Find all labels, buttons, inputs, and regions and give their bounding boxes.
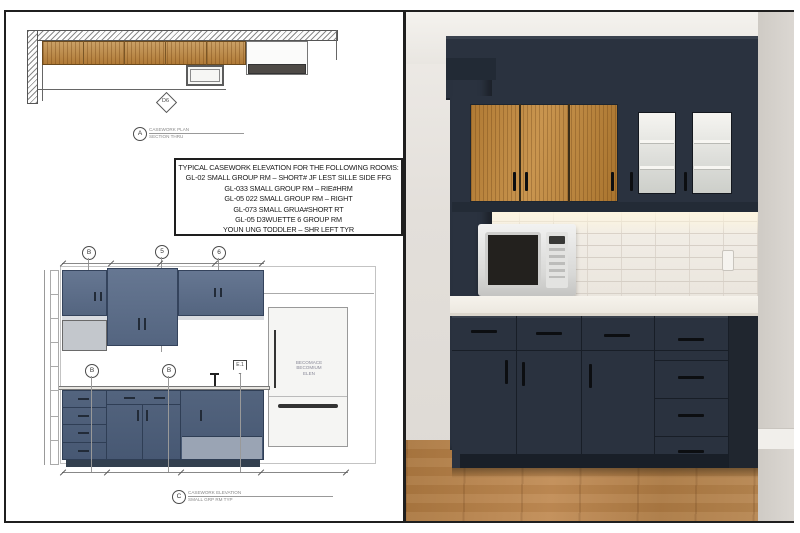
stack-drawer-handle xyxy=(678,450,704,453)
wood-upper-doors xyxy=(470,104,618,202)
base-drawer-handle xyxy=(604,334,630,337)
el-upper-handle xyxy=(144,318,146,330)
plan-section-bubble: A xyxy=(133,127,147,141)
plan-caption-line2: SECTION THRU xyxy=(149,134,183,140)
el-door-handle xyxy=(137,410,139,421)
plan-cab-divider xyxy=(165,41,166,65)
callout-bubble: B xyxy=(85,364,99,378)
note-title: TYPICAL CASEWORK ELEVATION FOR THE FOLLO… xyxy=(176,163,401,173)
el-base-divider xyxy=(106,390,107,460)
stack-drawer-handle xyxy=(678,376,704,379)
el-drawer-handle xyxy=(78,450,89,452)
el-door-handle xyxy=(200,410,202,421)
story-pole-line xyxy=(50,342,59,343)
el-undercab-light-band xyxy=(178,316,264,320)
el-door-stile xyxy=(142,404,143,460)
el-drawer-handle xyxy=(78,415,89,417)
dim-line-top xyxy=(62,263,264,264)
microwave-buttons xyxy=(549,248,565,278)
toe-kick xyxy=(460,454,728,468)
plan-detail-tag: D6 xyxy=(159,98,172,104)
plan-cab-divider xyxy=(83,41,84,65)
glass-shelf-line xyxy=(694,166,730,169)
el-toe-kick xyxy=(66,460,260,467)
base-divider xyxy=(654,316,655,468)
base-cabinet-run xyxy=(452,316,760,468)
el-upper-handle xyxy=(138,318,140,330)
el-drawer-line xyxy=(62,442,106,443)
base-door-handle xyxy=(505,360,508,384)
base-divider xyxy=(516,316,517,468)
plan-wall-corner xyxy=(27,30,38,104)
stack-drawer-handle xyxy=(678,338,704,341)
story-pole-line xyxy=(50,416,59,417)
el-sink-apron xyxy=(182,436,262,459)
el-fridge-freezer-line xyxy=(269,396,347,397)
base-drawer-handle xyxy=(536,332,562,335)
grid-bubble: 6 xyxy=(212,246,226,260)
tall-cabinet-crown xyxy=(446,58,496,80)
callout-leader xyxy=(91,376,92,472)
glass-shelf-line xyxy=(694,140,730,143)
note-line: GL-033 SMALL GROUP RM – RIE#HRM xyxy=(176,184,401,194)
glass-door-left-pane xyxy=(638,112,676,194)
elevation-caption-line2: SMALL GRP RM TYP xyxy=(188,497,233,503)
wood-door-gap xyxy=(519,104,521,202)
story-pole-line xyxy=(50,366,59,367)
elevation-caption-line1: CASEWORK ELEVATION xyxy=(188,490,241,496)
el-upper-cab-middle xyxy=(107,268,178,346)
el-upper-handle xyxy=(214,288,216,297)
callout-bubble: B xyxy=(162,364,176,378)
el-drawer-handle xyxy=(124,397,135,399)
plan-upper-cabinets xyxy=(42,41,246,65)
countertop xyxy=(450,296,760,316)
plan-wall-end xyxy=(336,30,337,60)
story-pole xyxy=(50,270,59,465)
dim-tick xyxy=(343,469,349,475)
el-faucet-spout xyxy=(210,373,219,375)
el-open-shelf-box xyxy=(62,320,107,351)
stack-drawer-handle xyxy=(678,414,704,417)
story-pole-line xyxy=(50,294,59,295)
base-divider xyxy=(581,316,582,468)
el-drawer-line xyxy=(62,424,106,425)
keynote-tag: E.1 xyxy=(233,362,247,368)
note-line: GL-05 D3WUETTE 6 GROUP RM xyxy=(176,215,401,225)
grid-bubble: B xyxy=(82,246,96,260)
el-drawer-handle xyxy=(78,432,89,434)
el-fridge-label-line: ELEN xyxy=(284,371,334,376)
glass-shelf-line xyxy=(640,140,674,143)
grid-bubble: 5 xyxy=(155,245,169,259)
el-door-handle xyxy=(146,410,148,421)
dim-line-left xyxy=(44,270,45,465)
cabinet-floor-shadow xyxy=(452,468,760,478)
base-side-panel xyxy=(729,316,760,468)
story-pole-line xyxy=(50,390,59,391)
stack-drawer-line xyxy=(655,398,728,399)
stack-drawer-line xyxy=(655,360,728,361)
plan-counter-edge xyxy=(38,89,226,90)
plan-sink-inner xyxy=(190,69,220,82)
screenshot-root: D6 A CASEWORK PLAN SECTION THRU TYPICAL … xyxy=(0,0,800,533)
dim-line-fridge xyxy=(264,293,374,294)
plan-cab-divider xyxy=(124,41,125,65)
el-fridge-label: BECOMACE BECOMIUM ELEN xyxy=(284,360,334,376)
casework-note-box: TYPICAL CASEWORK ELEVATION FOR THE FOLLO… xyxy=(174,158,403,236)
el-drawer-handle xyxy=(154,397,165,399)
plan-wall-band xyxy=(30,30,338,41)
el-drawer-handle xyxy=(78,398,89,400)
el-base-divider xyxy=(180,390,181,460)
story-pole-line xyxy=(50,440,59,441)
plan-caption-line1: CASEWORK PLAN xyxy=(149,127,189,133)
el-drawer-line xyxy=(62,407,106,408)
note-line: GL-05 022 SMALL GROUP RM – RIGHT xyxy=(176,194,401,204)
el-upper-handle xyxy=(220,288,222,297)
upper-door-handle xyxy=(525,172,528,191)
upper-door-handle xyxy=(513,172,516,191)
wall-outlet xyxy=(722,250,734,271)
microwave-door-window xyxy=(485,232,541,288)
microwave-display xyxy=(549,236,565,244)
base-drawer-handle xyxy=(471,330,497,333)
callout-leader xyxy=(240,374,241,472)
el-faucet xyxy=(214,374,216,386)
stack-drawer-line xyxy=(655,436,728,437)
story-pole-line xyxy=(50,318,59,319)
base-door-handle xyxy=(522,362,525,386)
el-freezer-handle xyxy=(278,404,338,408)
el-upper-handle xyxy=(94,292,96,301)
right-baseboard xyxy=(758,428,794,449)
el-fridge-handle xyxy=(274,330,276,388)
glass-door-right-pane xyxy=(692,112,732,194)
plan-refrigerator-unit xyxy=(248,64,306,74)
upper-door-handle xyxy=(611,172,614,191)
wood-door-gap xyxy=(568,104,570,202)
upper-bottom-rail xyxy=(452,202,770,212)
glass-door-handle xyxy=(684,172,687,191)
callout-leader xyxy=(168,376,169,472)
drawer-row-line xyxy=(452,350,728,351)
plan-cab-divider xyxy=(206,41,207,65)
drawing-panel: D6 A CASEWORK PLAN SECTION THRU TYPICAL … xyxy=(6,12,403,521)
note-line: GL-073 SMALL GRUA#SHORT RT xyxy=(176,205,401,215)
base-door-handle xyxy=(589,364,592,388)
kitchen-render-photo xyxy=(406,12,794,521)
el-upper-handle xyxy=(100,292,102,301)
note-line: YOUN UNG TODDLER – SHR LEFT TYR xyxy=(176,225,401,235)
glass-shelf-line xyxy=(640,166,674,169)
elevation-section-bubble: C xyxy=(172,490,186,504)
note-line: GL-02 SMALL GROUP RM – SHORT# JF LEST SI… xyxy=(176,173,401,183)
el-refrigerator xyxy=(268,307,348,447)
glass-door-handle xyxy=(630,172,633,191)
